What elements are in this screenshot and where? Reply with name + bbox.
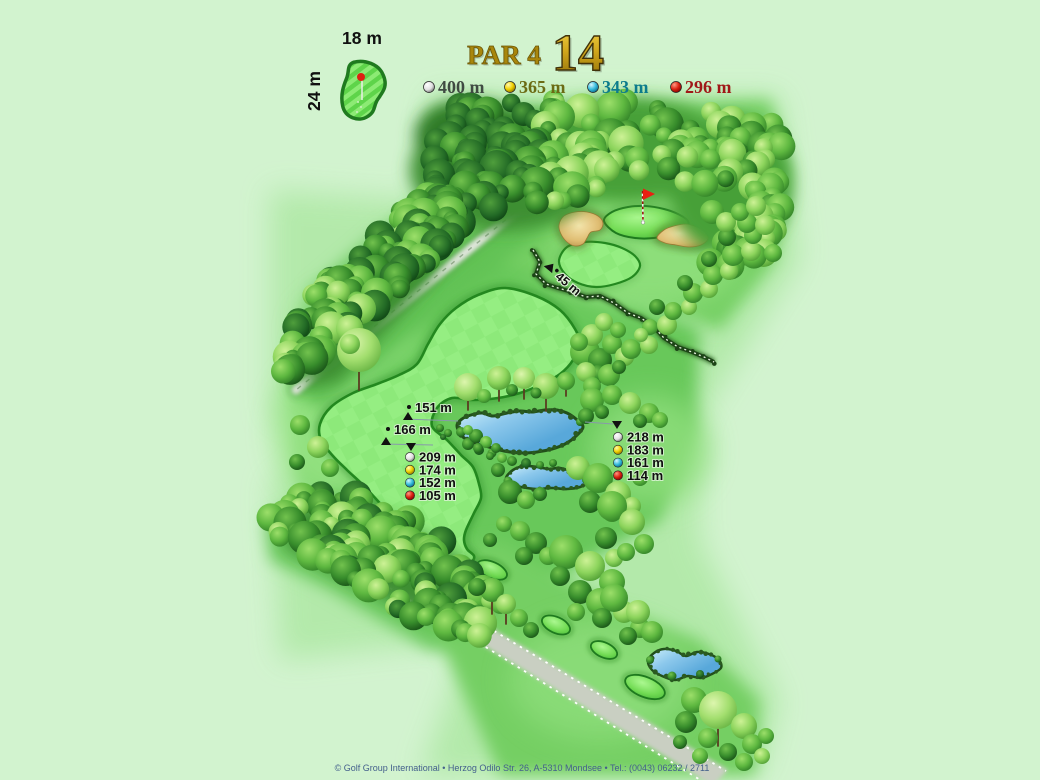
svg-text:© Golf Group International • H: © Golf Group International • Herzog Odil… <box>335 763 710 773</box>
svg-text:105 m: 105 m <box>419 488 456 503</box>
svg-text:400 m: 400 m <box>438 77 485 97</box>
svg-text:343 m: 343 m <box>602 77 649 97</box>
svg-text:14: 14 <box>552 25 604 82</box>
svg-text:365 m: 365 m <box>519 77 566 97</box>
svg-text:18 m: 18 m <box>342 28 382 48</box>
svg-text:296 m: 296 m <box>685 77 732 97</box>
svg-text:114 m: 114 m <box>627 468 663 483</box>
svg-text:PAR 4: PAR 4 <box>467 40 541 70</box>
svg-text:24 m: 24 m <box>304 71 324 111</box>
svg-text:151 m: 151 m <box>415 400 452 415</box>
svg-text:166 m: 166 m <box>394 422 431 437</box>
